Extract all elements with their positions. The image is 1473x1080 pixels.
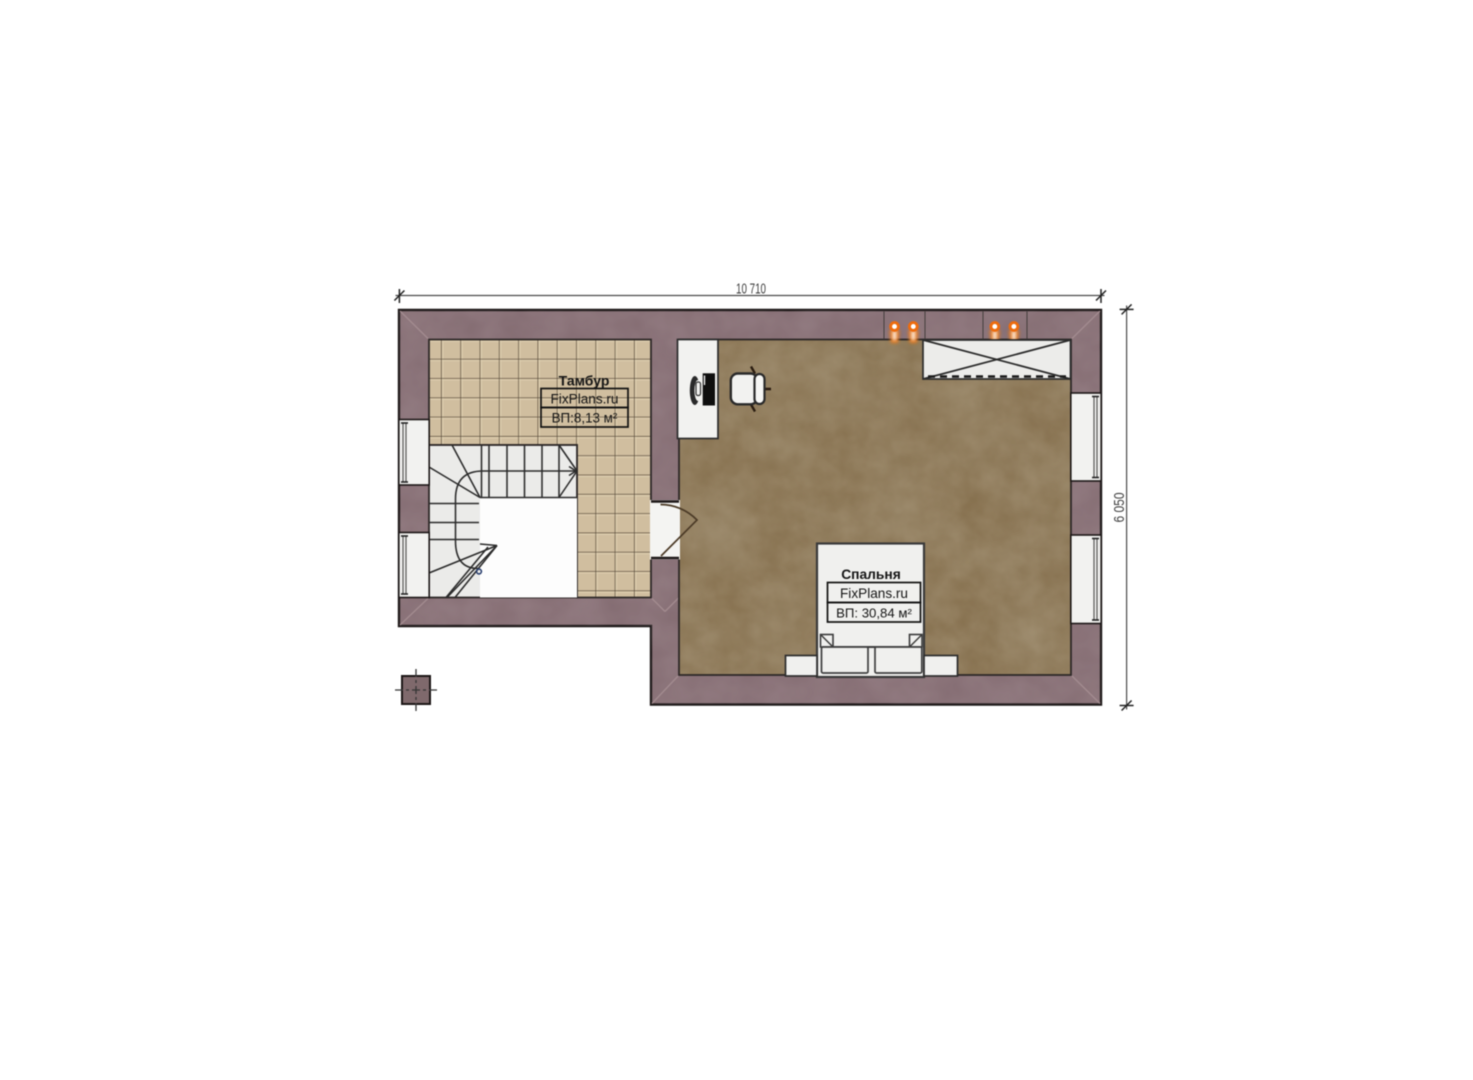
svg-text:6 050: 6 050	[1112, 493, 1128, 523]
svg-text:ВП: 30,84 м²: ВП: 30,84 м²	[836, 606, 912, 621]
svg-text:Спальня: Спальня	[841, 567, 901, 582]
svg-text:FixPlans.ru: FixPlans.ru	[840, 586, 908, 601]
svg-text:10 710: 10 710	[736, 282, 766, 298]
svg-text:FixPlans.ru: FixPlans.ru	[551, 392, 619, 407]
svg-text:ВП:8,13 м²: ВП:8,13 м²	[552, 411, 618, 426]
svg-text:Тамбур: Тамбур	[559, 373, 610, 389]
